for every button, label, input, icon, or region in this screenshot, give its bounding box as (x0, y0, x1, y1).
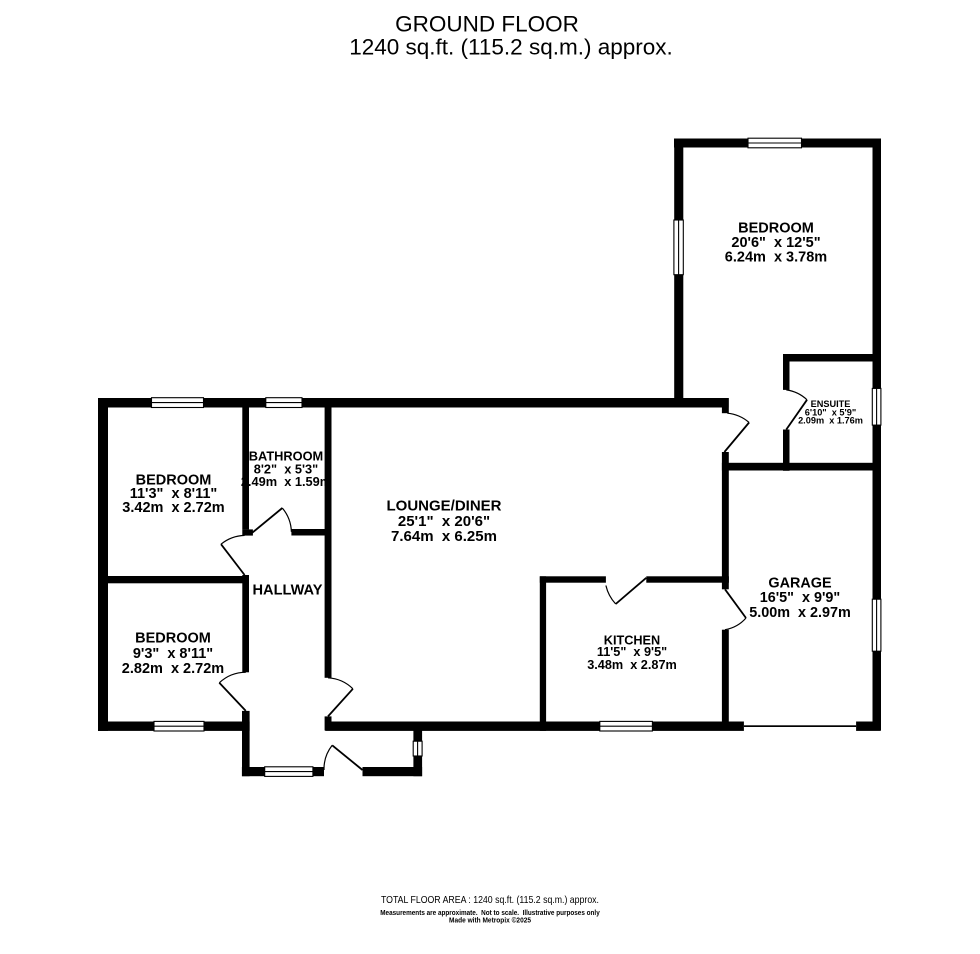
svg-text:16'5" x 9'9": 16'5" x 9'9" (760, 590, 841, 606)
svg-text:TOTAL FLOOR AREA : 1240 sq.ft.: TOTAL FLOOR AREA : 1240 sq.ft. (115.2 sq… (381, 895, 599, 906)
svg-text:6.24m x 3.78m: 6.24m x 3.78m (725, 250, 827, 266)
svg-text:9'3" x 8'11": 9'3" x 8'11" (133, 646, 213, 662)
svg-text:3.42m x 2.72m: 3.42m x 2.72m (122, 500, 224, 516)
svg-text:2.82m x 2.72m: 2.82m x 2.72m (122, 661, 224, 677)
svg-text:1240 sq.ft. (115.2 sq.m.) appr: 1240 sq.ft. (115.2 sq.m.) approx. (349, 35, 673, 60)
svg-text:Made with Metropix ©2025: Made with Metropix ©2025 (449, 916, 532, 925)
svg-text:3.48m x 2.87m: 3.48m x 2.87m (587, 658, 677, 672)
svg-text:GROUND FLOOR: GROUND FLOOR (395, 12, 579, 37)
svg-text:5.00m x 2.97m: 5.00m x 2.97m (749, 605, 851, 621)
svg-text:GARAGE: GARAGE (768, 575, 832, 591)
svg-text:2.09m x 1.76m: 2.09m x 1.76m (798, 416, 863, 426)
svg-text:HALLWAY: HALLWAY (252, 582, 322, 598)
svg-text:7.64m x 6.25m: 7.64m x 6.25m (391, 528, 497, 545)
svg-text:BEDROOM: BEDROOM (135, 631, 211, 647)
svg-text:2.49m x 1.59m: 2.49m x 1.59m (241, 474, 331, 489)
